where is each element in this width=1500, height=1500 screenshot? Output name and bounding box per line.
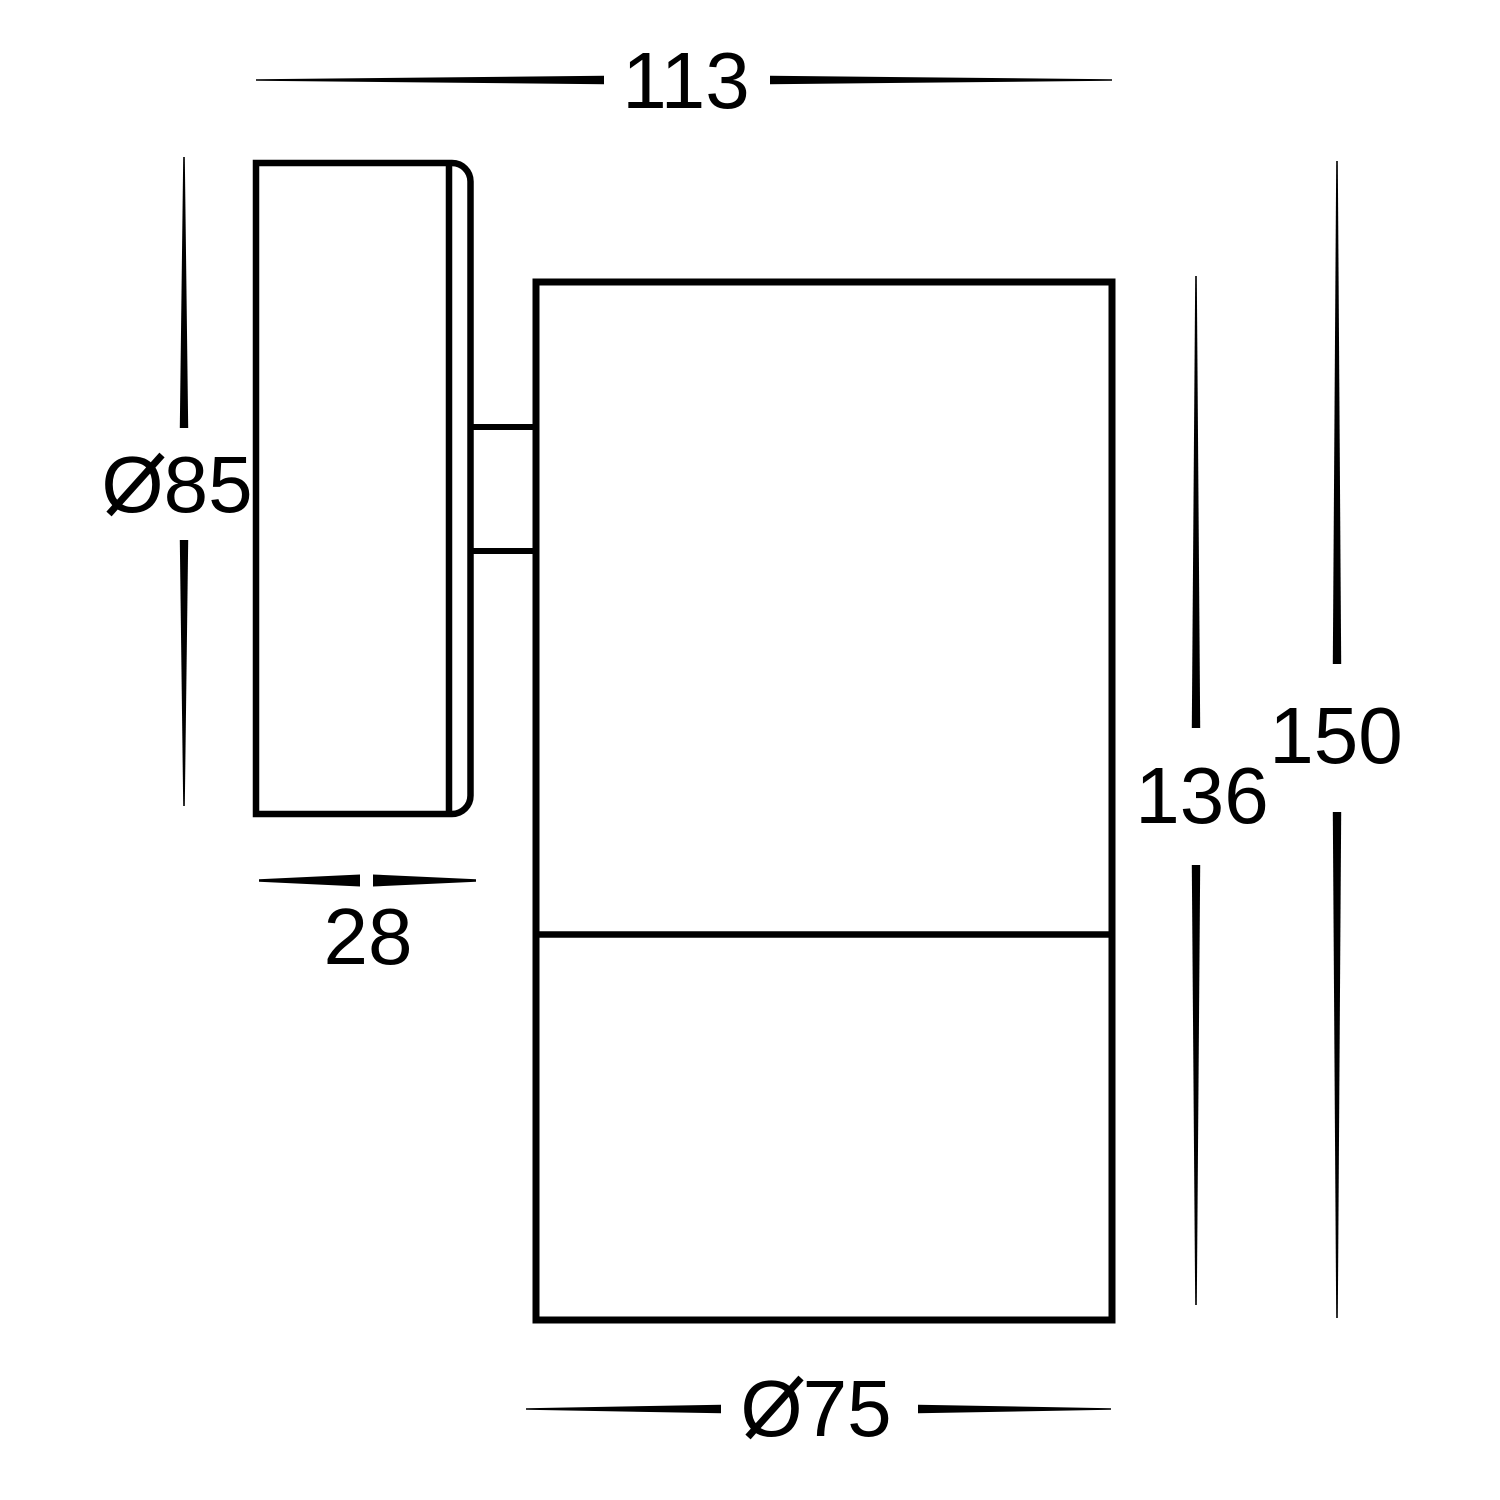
- svg-text:150: 150: [1269, 691, 1402, 780]
- svg-text:O75: O75: [740, 1364, 891, 1453]
- svg-text:136: 136: [1135, 751, 1268, 840]
- svg-text:113: 113: [622, 36, 750, 125]
- svg-text:O85: O85: [101, 440, 252, 529]
- svg-text:28: 28: [324, 892, 413, 981]
